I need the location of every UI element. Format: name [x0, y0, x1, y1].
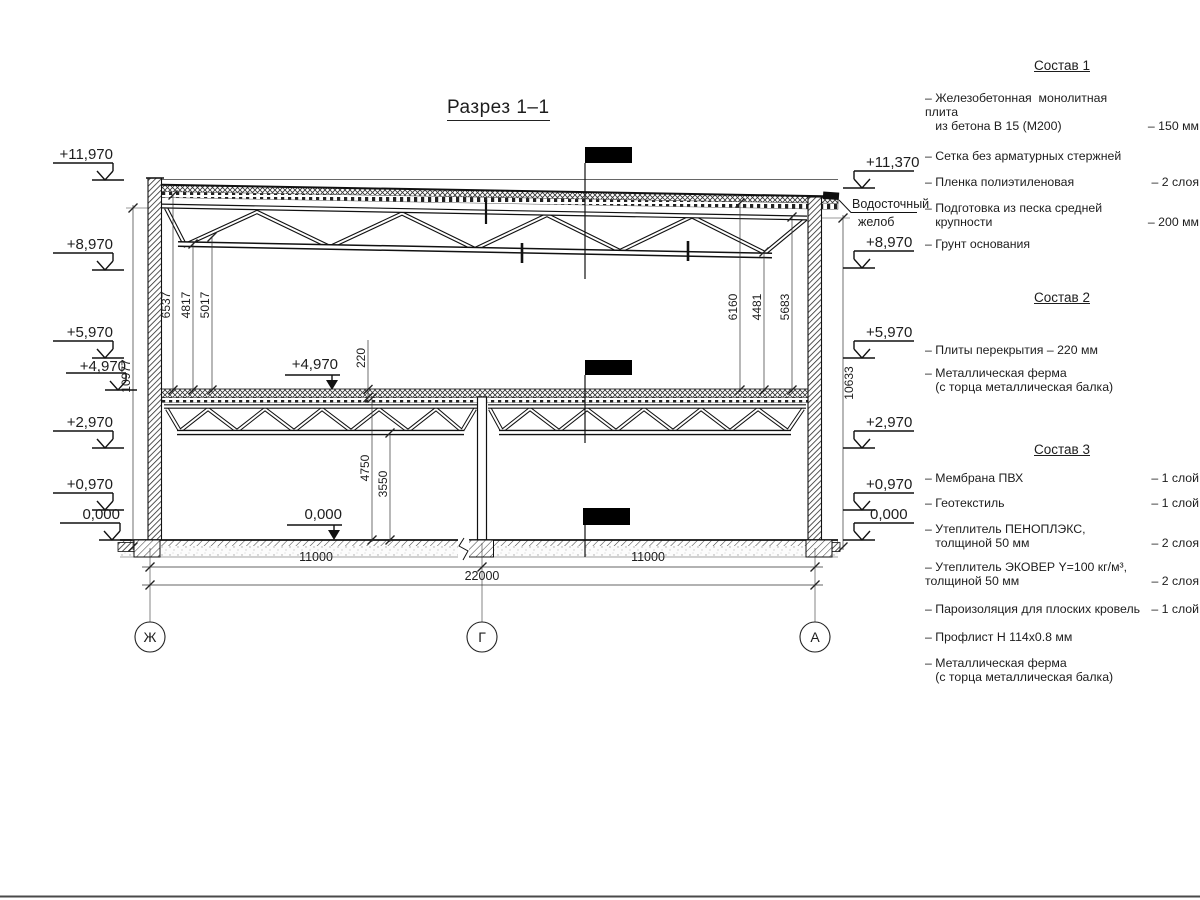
composition-item: – Сетка без арматурных стержней — [925, 149, 1199, 163]
composition-list-1: Состав 1 – Железобетонная монолитная пли… — [925, 58, 1199, 252]
composition-item-text: – Железобетонная монолитная плита из бет… — [925, 91, 1142, 133]
dim-span-left: 11000 — [286, 550, 346, 564]
composition-item: – Пленка полиэтиленовая – 2 слоя — [925, 175, 1199, 189]
dim-right-height-3: 5683 — [777, 275, 793, 339]
composition-item: – Геотекстиль – 1 слой — [925, 496, 1199, 510]
composition-list-2: Состав 2 – Плиты перекрытия – 220 мм – М… — [925, 290, 1199, 394]
callout-flag-middle — [585, 360, 632, 375]
gutter-label-line1: Водосточный — [852, 197, 929, 211]
composition-item: – Мембрана ПВХ – 1 слой — [925, 471, 1199, 485]
composition-1-heading: Состав 1 — [925, 58, 1199, 73]
drawing-sheet: Разрез 1–1 +11,970 +8,970 +5,970 +4,970 … — [0, 0, 1200, 900]
dim-left-height-1: 6537 — [158, 273, 174, 337]
composition-item-value: – 1 слой — [1145, 471, 1199, 485]
composition-item: – Железобетонная монолитная плита из бет… — [925, 91, 1199, 133]
composition-item-text: – Профлист Н 114х0.8 мм — [925, 630, 1072, 644]
elevation-left-11970: +11,970 — [33, 146, 113, 163]
axis-label-g: Г — [467, 622, 497, 652]
elevation-right-2970: +2,970 — [866, 414, 958, 431]
composition-item: – Утеплитель ПЕНОПЛЭКС, толщиной 50 мм –… — [925, 522, 1199, 550]
elevation-left-4970: +4,970 — [46, 358, 126, 375]
elevation-left-8970: +8,970 — [33, 236, 113, 253]
dim-height-to-truss: 3550 — [375, 452, 391, 516]
composition-item: – Утеплитель ЭКОВЕР Y=100 кг/м³, толщино… — [925, 560, 1199, 588]
dim-right-overall: 10633 — [841, 351, 857, 415]
composition-item: – Металлическая ферма (с торца металличе… — [925, 366, 1199, 394]
dim-left-overall: 10977 — [118, 344, 134, 408]
right-wall — [808, 197, 822, 540]
composition-list-3: Состав 3 – Мембрана ПВХ – 1 слой – Геоте… — [925, 442, 1199, 684]
composition-item-text: – Геотекстиль — [925, 496, 1005, 510]
composition-item: – Металлическая ферма (с торца металличе… — [925, 656, 1199, 684]
composition-item: – Подготовка из песка средней крупности … — [925, 201, 1199, 229]
composition-3-heading: Состав 3 — [925, 442, 1199, 457]
elevation-inner-4970: +4,970 — [258, 356, 338, 373]
composition-item-value: – 200 мм — [1142, 215, 1199, 229]
composition-item-value: – 150 мм — [1142, 119, 1199, 133]
dim-right-height-2: 4481 — [749, 275, 765, 339]
floor-truss-right — [488, 407, 806, 433]
left-wall — [146, 178, 164, 540]
composition-item-text: – Металлическая ферма (с торца металличе… — [925, 366, 1113, 394]
composition-item: – Профлист Н 114х0.8 мм — [925, 630, 1199, 644]
composition-item-value: – 1 слой — [1145, 602, 1199, 616]
composition-item-text: – Пленка полиэтиленовая — [925, 175, 1074, 189]
gutter-label-line2: желоб — [858, 215, 894, 229]
composition-item-value: – 1 слой — [1145, 496, 1199, 510]
axis-label-zh: Ж — [135, 622, 165, 652]
composition-item-text: – Подготовка из песка средней крупности — [925, 201, 1102, 229]
composition-item: – Плиты перекрытия – 220 мм — [925, 343, 1199, 357]
composition-item-value: – 2 слоя — [1146, 536, 1199, 550]
elevation-left-2970: +2,970 — [33, 414, 113, 431]
elevation-left-0000: 0,000 — [40, 506, 120, 523]
roof-truss — [161, 200, 807, 263]
elevation-left-0970: +0,970 — [33, 476, 113, 493]
composition-item-text: – Плиты перекрытия – 220 мм — [925, 343, 1098, 357]
callout-flags — [583, 147, 632, 557]
center-column — [478, 397, 487, 540]
left-foundation — [134, 540, 160, 557]
composition-item-text: – Металлическая ферма (с торца металличе… — [925, 656, 1113, 684]
composition-item-text: – Утеплитель ЭКОВЕР Y=100 кг/м³, толщино… — [925, 560, 1127, 588]
composition-item-value: – 2 слоя — [1146, 175, 1199, 189]
axis-label-a: А — [800, 622, 830, 652]
composition-2-heading: Состав 2 — [925, 290, 1199, 305]
dim-right-height-1: 6160 — [725, 275, 741, 339]
composition-item-text: – Грунт основания — [925, 237, 1030, 251]
composition-item: – Грунт основания — [925, 237, 1199, 251]
elevation-left-5970: +5,970 — [33, 324, 113, 341]
section-title: Разрез 1–1 — [447, 97, 550, 121]
composition-item-text: – Сетка без арматурных стержней — [925, 149, 1121, 163]
roof — [148, 180, 838, 210]
floor-truss-left — [164, 407, 477, 433]
composition-item-text: – Пароизоляция для плоских кровель — [925, 602, 1140, 616]
center-foundation — [469, 540, 494, 557]
callout-flag-top — [585, 147, 632, 163]
dim-span-right: 11000 — [618, 550, 678, 564]
dim-slab-thickness: 220 — [353, 326, 369, 390]
composition-item: – Пароизоляция для плоских кровель – 1 с… — [925, 602, 1199, 616]
ground-floor — [118, 538, 840, 560]
composition-item-text: – Утеплитель ПЕНОПЛЭКС, толщиной 50 мм — [925, 522, 1086, 550]
dim-span-total: 22000 — [452, 569, 512, 583]
dim-left-height-3: 5017 — [197, 273, 213, 337]
composition-item-text: – Мембрана ПВХ — [925, 471, 1023, 485]
elevation-inner-0000: 0,000 — [262, 506, 342, 523]
composition-item-value: – 2 слоя — [1146, 574, 1199, 588]
dim-left-height-2: 4817 — [178, 273, 194, 337]
callout-flag-bottom — [583, 508, 630, 525]
right-foundation — [806, 540, 832, 557]
dim-height-to-slab: 4750 — [357, 436, 373, 500]
